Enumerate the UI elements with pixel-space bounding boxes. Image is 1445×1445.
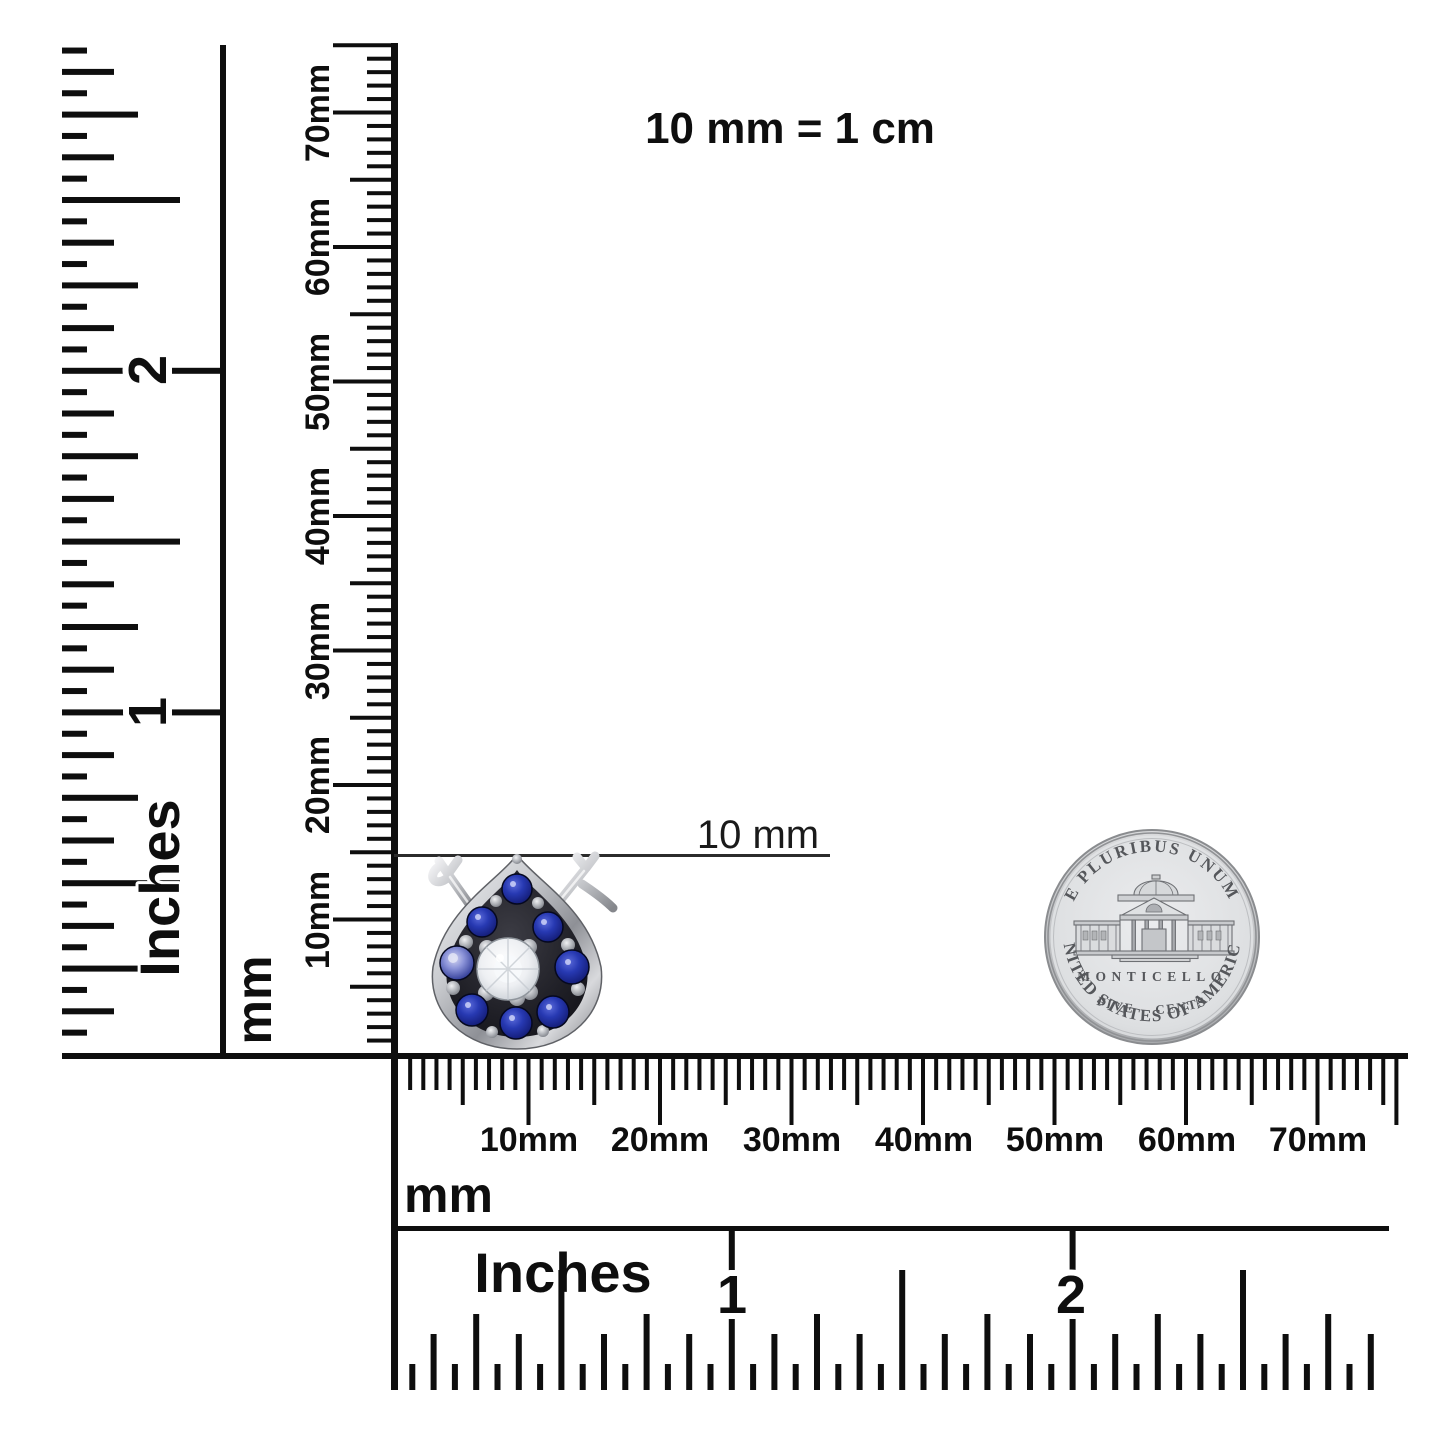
mm-label: 20mm — [611, 1121, 709, 1159]
mm-label: 10mm — [299, 871, 337, 969]
horizontal-inches-numeral-1: 1 — [717, 1265, 747, 1325]
vertical-inches-unit-label: Inches — [128, 799, 191, 976]
sapphire-diamond-stud-earring — [432, 854, 613, 1049]
horizontal-inches-numeral-2: 2 — [1056, 1265, 1086, 1325]
sapphire-stone — [537, 996, 569, 1028]
mm-label: 50mm — [1006, 1121, 1104, 1159]
nickel-coin: E PLURIBUS UNUM MONTICELLO FIVE CENTS UN… — [1045, 830, 1259, 1044]
earring-wire-left — [433, 860, 472, 908]
sapphire-stone — [533, 912, 563, 942]
center-diamond — [477, 938, 539, 1000]
sapphire-stone — [456, 994, 488, 1026]
product-size-chart: 10 mm = 1 cm 10 mm 1 2 Inches mm 10mm 20… — [0, 0, 1445, 1445]
mm-label: 60mm — [299, 198, 337, 296]
mm-label: 30mm — [299, 602, 337, 700]
mm-label: 70mm — [1269, 1121, 1367, 1159]
vertical-mm-ruler — [333, 43, 397, 1042]
ruler-frame-lines — [62, 43, 1408, 1390]
size-callout-label: 10 mm — [697, 813, 819, 857]
mm-label: 40mm — [299, 467, 337, 565]
earring-wire-right — [558, 856, 613, 908]
horizontal-mm-ruler — [408, 1059, 1398, 1125]
sapphire-stone — [555, 950, 589, 984]
coin-building-label: MONTICELLO — [1077, 969, 1227, 984]
tip-prong — [512, 854, 522, 864]
vertical-inches-numeral-2: 2 — [118, 355, 178, 385]
mm-label: 40mm — [875, 1121, 973, 1159]
sapphire-stone — [502, 874, 532, 904]
mm-label: 70mm — [299, 64, 337, 162]
sapphire-stone — [467, 907, 497, 937]
scene: 10 mm = 1 cm 10 mm 1 2 Inches mm 10mm 20… — [0, 0, 1445, 1445]
mm-label: 50mm — [299, 333, 337, 431]
horizontal-inches-unit-label: Inches — [474, 1241, 651, 1304]
horizontal-mm-unit-label: mm — [404, 1167, 493, 1223]
conversion-note: 10 mm = 1 cm — [645, 104, 935, 153]
mm-label: 20mm — [299, 736, 337, 834]
vertical-inches-numeral-1: 1 — [118, 697, 178, 727]
mm-label: 10mm — [480, 1121, 578, 1159]
sapphire-stone — [440, 946, 474, 980]
mm-label: 60mm — [1138, 1121, 1236, 1159]
mm-label: 30mm — [743, 1121, 841, 1159]
sapphire-stone — [500, 1007, 532, 1039]
vertical-mm-unit-label: mm — [226, 956, 282, 1045]
